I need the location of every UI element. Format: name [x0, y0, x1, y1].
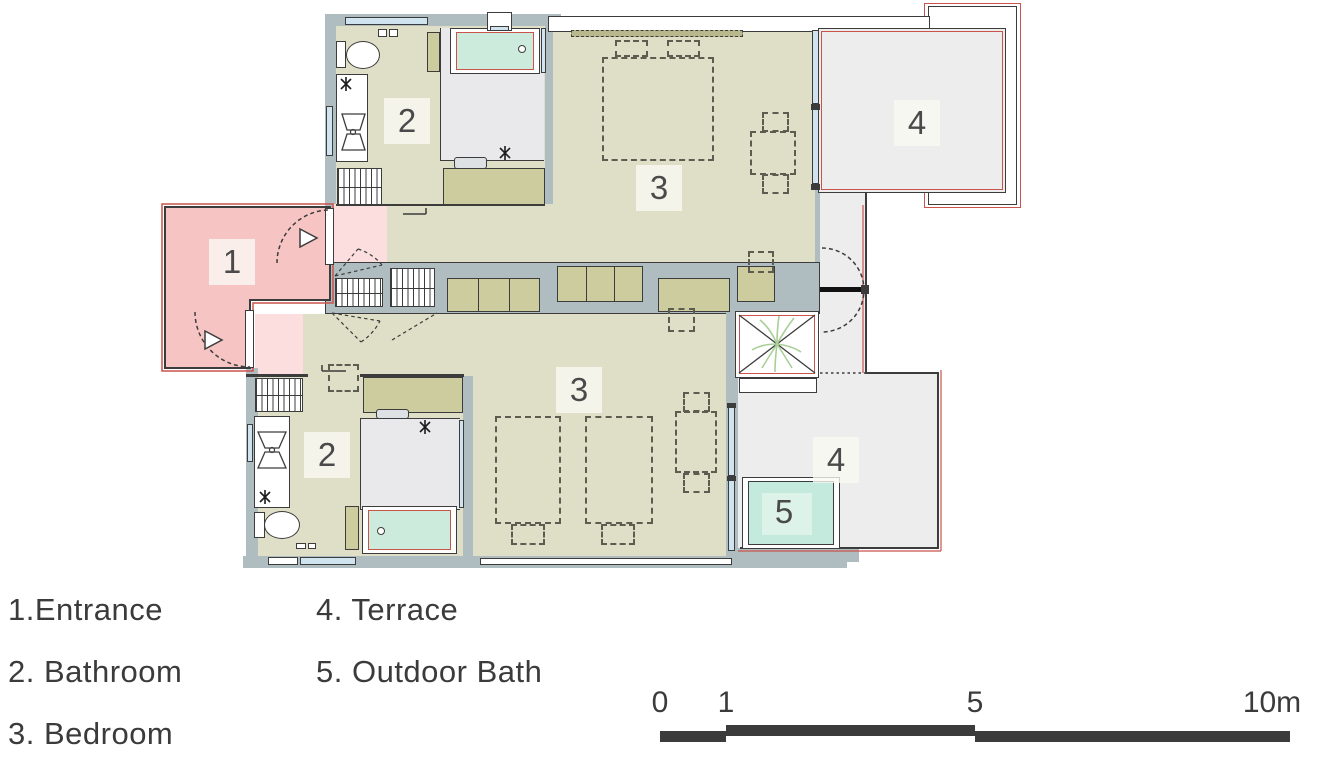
room-number: 3: [570, 371, 588, 409]
window-bath-upper-top: [345, 17, 428, 25]
double-bed-upper: [602, 57, 714, 161]
corridor-upper-floor: [387, 204, 555, 264]
window-shower-lower: [459, 420, 464, 508]
room-label-bedroom-lower: 3: [556, 367, 602, 413]
room-number: 4: [908, 104, 926, 142]
bathtub-drain-lower: [377, 527, 385, 535]
window-bedroom-lower-right-1: [728, 406, 735, 476]
floor-plan-page: 1 2 3 4 2 3 4 5 1.Entrance 2. Bathroom 3…: [0, 0, 1318, 763]
scale-tick-10m: 10m: [1237, 686, 1307, 720]
room-number: 5: [775, 493, 793, 531]
bed-footer-lower-2: [601, 524, 635, 545]
legend-item-outdoor-bath: 5. Outdoor Bath: [316, 654, 542, 690]
terrace-gate-hinge: [861, 285, 869, 294]
storage-hatch-band-1: [335, 278, 383, 307]
entrance-door-leaf-upper: [325, 208, 334, 265]
legend-item-entrance: 1.Entrance: [8, 592, 163, 628]
towel-hook-upper-2: [389, 29, 398, 37]
planter-red-line: [739, 315, 815, 374]
storage-hatch-lower-bath: [255, 378, 303, 412]
cabinet-band-c: [658, 278, 730, 312]
room-label-outdoor-bath: 5: [761, 489, 807, 535]
room-number: 2: [398, 102, 416, 140]
mullion-lower-1: [727, 403, 736, 408]
scale-tick-1: 1: [711, 686, 741, 720]
chair-lower-1: [683, 392, 710, 412]
scale-tick-0: 0: [645, 686, 675, 720]
door-swing-entrance-lower: [195, 312, 250, 367]
room-label-bathroom-upper: 2: [384, 98, 430, 144]
cabinet-lower-bath: [363, 377, 463, 413]
scale-segment-0-1: [660, 731, 726, 742]
terrace-lower-floor-east: [866, 373, 938, 548]
terrace-gate-leaf: [820, 287, 864, 292]
room-number: 4: [827, 441, 845, 479]
room-label-terrace-upper: 4: [894, 100, 940, 146]
single-bed-lower-1: [495, 416, 561, 524]
single-bed-lower-2: [585, 416, 653, 524]
entrance-door-leaf-lower: [245, 310, 254, 368]
toilet-bowl-lower: [264, 511, 300, 539]
terrace-connector-strip: [820, 193, 866, 375]
pillow-upper-2: [667, 40, 700, 57]
cabinet-upper-shower-side: [427, 32, 440, 72]
towel-hook-lower-2: [308, 543, 316, 549]
toilet-bowl-upper: [346, 41, 380, 69]
cabinet-band-a: [447, 278, 540, 312]
stool-upper: [748, 251, 774, 273]
storage-hatch-upper-bath: [337, 168, 382, 205]
legend-item-bedroom: 3. Bedroom: [8, 716, 173, 752]
cabinet-band-b: [557, 266, 643, 302]
vanity-counter-lower: [254, 416, 290, 508]
window-bedroom-upper-right-1: [812, 30, 819, 104]
window-bedroom-upper-right-2: [812, 108, 819, 184]
wall-bath-bedroom-divider-lower: [463, 376, 473, 556]
cabinet-lower-tub-side: [345, 506, 359, 550]
wall-under-outdoor-bath: [733, 548, 859, 562]
chair-lower-2: [683, 473, 710, 493]
room-number: 2: [318, 436, 336, 474]
toilet-tank-upper: [336, 41, 346, 68]
room-label-terrace-lower: 4: [813, 437, 859, 483]
chair-upper-2: [762, 174, 789, 194]
bathroom-lower-top-line-a: [246, 374, 308, 377]
mullion-lower-2: [727, 476, 736, 481]
glass-bedroom-lower-bottom: [480, 558, 732, 565]
chair-upper-1: [762, 112, 789, 132]
scale-segment-1-5: [726, 725, 975, 736]
headboard-shelf-upper: [571, 30, 743, 37]
mullion-upper-2: [811, 184, 820, 190]
table-upper: [750, 131, 796, 175]
shower-room-lower: [360, 418, 460, 510]
door-bath-lower-bottom: [268, 557, 298, 565]
stool-hall-lower: [328, 364, 359, 392]
window-bedroom-lower-right-2: [728, 479, 735, 551]
entry-arrow-lower: [205, 331, 222, 349]
table-lower: [675, 411, 717, 473]
storage-hatch-band-2: [390, 268, 435, 307]
pillow-upper-1: [615, 40, 648, 57]
bed-footer-lower-1: [511, 524, 545, 545]
entry-arrow-upper: [300, 229, 317, 247]
stool-lower-bedroom: [668, 308, 695, 332]
window-shower-upper: [541, 28, 546, 73]
vanity-counter-upper: [336, 74, 368, 162]
cabinet-upper-bath: [443, 168, 545, 205]
room-label-bedroom-upper: 3: [636, 165, 682, 211]
window-bay-glass: [490, 26, 509, 31]
window-bath-lower-left: [247, 424, 253, 462]
door-swing-entrance-upper: [277, 210, 330, 263]
vestibule-upper: [334, 204, 387, 262]
room-number: 1: [223, 243, 241, 281]
room-label-bathroom-lower: 2: [304, 432, 350, 478]
legend-item-bathroom: 2. Bathroom: [8, 654, 182, 690]
window-bath-upper-left: [326, 106, 333, 156]
towel-hook-lower-1: [296, 543, 306, 549]
legend-item-terrace: 4. Terrace: [316, 592, 458, 628]
room-number: 3: [650, 169, 668, 207]
mullion-upper-1: [811, 104, 820, 110]
vestibule-lower: [255, 314, 303, 374]
window-bath-lower-bottom: [300, 557, 356, 565]
bathtub-drain-upper: [518, 45, 526, 53]
scale-tick-5: 5: [960, 686, 990, 720]
planter-ledge: [739, 378, 817, 393]
towel-hook-upper-1: [378, 29, 387, 37]
scale-segment-5-10: [975, 731, 1290, 742]
room-label-entrance: 1: [209, 239, 255, 285]
bench-lower: [376, 409, 409, 419]
